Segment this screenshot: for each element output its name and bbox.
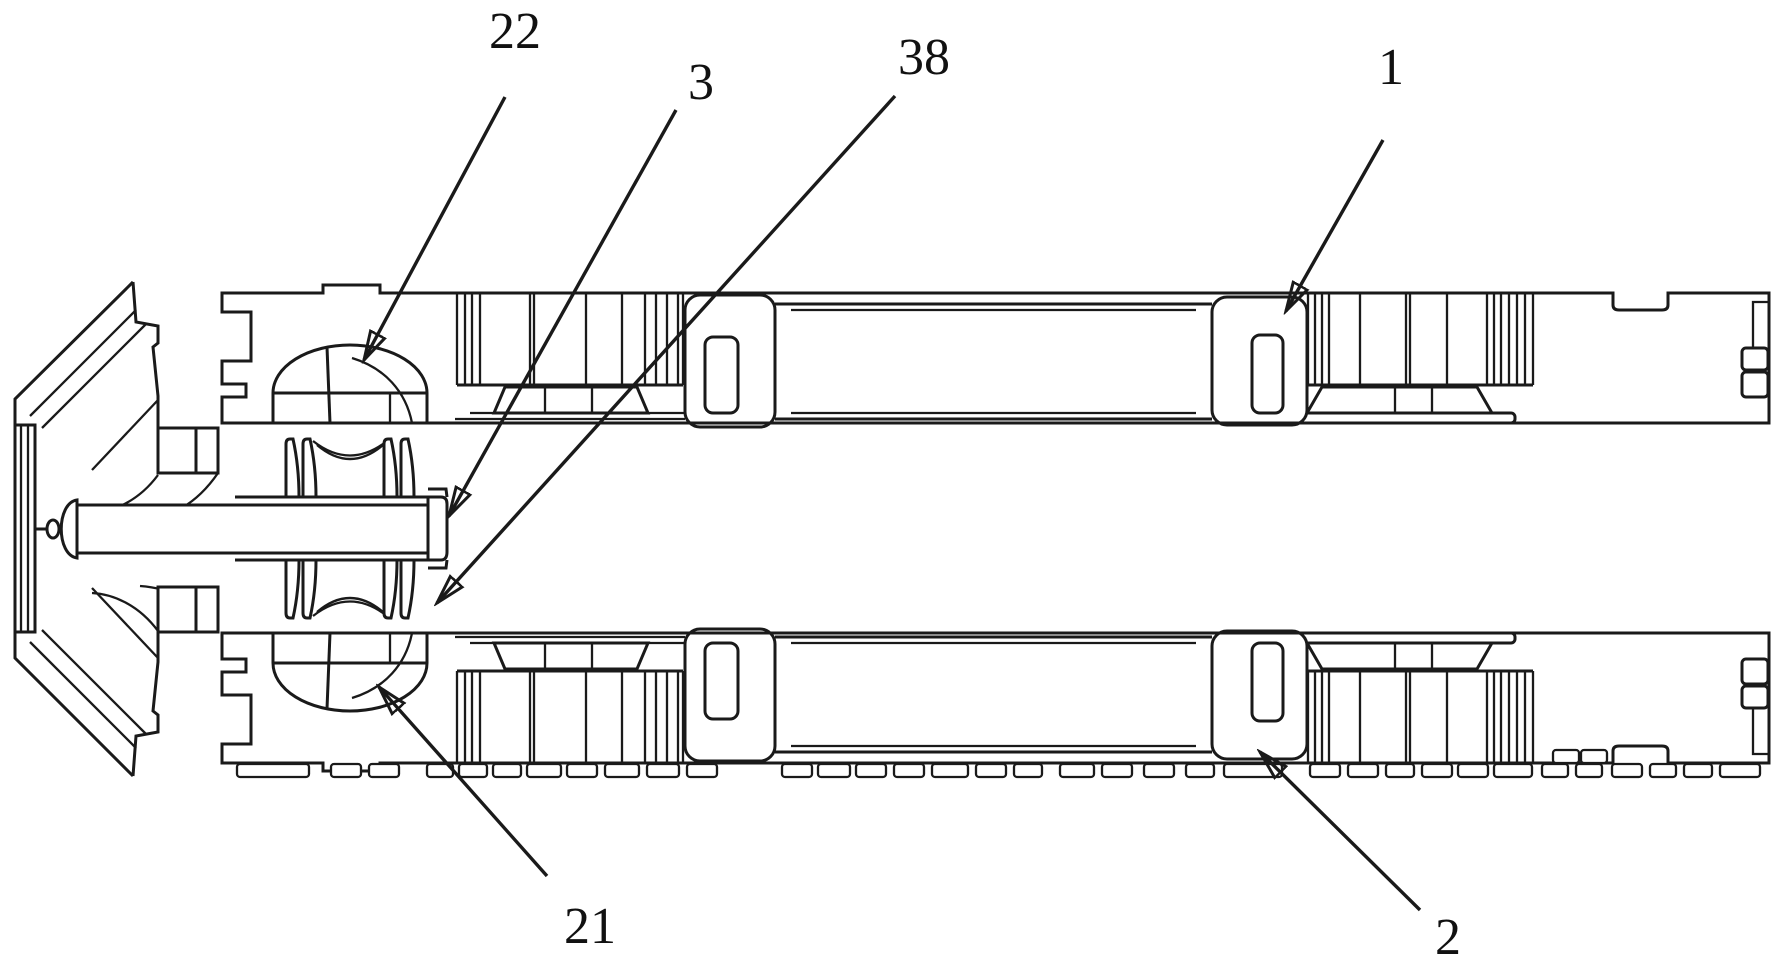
- lower-rail: [222, 629, 1769, 771]
- patent-figure: 223381212: [0, 0, 1785, 972]
- rail-foot: [687, 764, 717, 777]
- axle-tip: [47, 520, 59, 538]
- rail-foot: [567, 764, 597, 777]
- rail-foot: [976, 764, 1006, 777]
- rail-foot: [1650, 764, 1676, 777]
- roller-groove: [313, 602, 387, 617]
- reference-labels: 223381212: [364, 3, 1461, 966]
- rail-foot: [459, 764, 487, 777]
- roller-groove: [313, 441, 387, 456]
- ref-label-38: 38: [898, 29, 950, 86]
- rail-foot: [1684, 764, 1712, 777]
- rail-foot: [1060, 764, 1094, 777]
- rail-foot: [1186, 764, 1214, 777]
- roller-groove: [317, 445, 383, 459]
- roller-flange-blade: [303, 560, 316, 618]
- ref-label-2: 2: [1435, 909, 1461, 966]
- rail-foot: [1612, 764, 1642, 777]
- roller-flange-blade: [303, 439, 316, 497]
- cone-wall: [30, 310, 136, 416]
- rail-foot: [1310, 764, 1340, 777]
- roller-flange-blade: [384, 560, 397, 618]
- leader-line-21: [379, 687, 547, 876]
- rail-foot: [493, 764, 521, 777]
- rail-foot: [818, 764, 850, 777]
- roller-flange-blade: [401, 439, 414, 497]
- bracket-stub: [158, 587, 218, 632]
- rail-foot: [856, 764, 886, 777]
- ref-label-1: 1: [1378, 39, 1404, 96]
- bracket-stub: [158, 428, 218, 473]
- rail-foot: [369, 764, 399, 777]
- rail-foot: [1576, 764, 1602, 777]
- rail-foot: [1386, 764, 1414, 777]
- ref-label-3: 3: [688, 54, 714, 111]
- leader-line-22: [364, 97, 505, 360]
- cone-wall: [30, 642, 136, 748]
- roller-flange-blade: [286, 439, 299, 497]
- upper-rail: [222, 285, 1769, 427]
- cone-wall: [92, 400, 158, 470]
- roller-flange-blade: [286, 560, 299, 618]
- rail-foot: [932, 764, 968, 777]
- leader-line-38: [437, 96, 895, 603]
- cone-wall: [92, 588, 158, 658]
- cone-wall: [42, 630, 146, 734]
- rail-foot: [1422, 764, 1452, 777]
- rail-foot: [1144, 764, 1174, 777]
- rail-foot: [527, 764, 561, 777]
- ref-label-21: 21: [564, 898, 616, 955]
- rail-foot: [237, 764, 309, 777]
- rail-foot: [894, 764, 924, 777]
- rail-foot: [1542, 764, 1568, 777]
- bracket-plate: [15, 425, 35, 632]
- corner-block: [1553, 750, 1579, 763]
- corner-block: [1581, 750, 1607, 763]
- ref-label-22: 22: [489, 3, 541, 60]
- rail-foot: [1014, 764, 1042, 777]
- roller-groove: [317, 598, 383, 612]
- axle-right-cap: [428, 497, 447, 560]
- rail-foot: [1494, 764, 1532, 777]
- rail-foot: [1348, 764, 1378, 777]
- leader-line-3: [449, 110, 676, 516]
- rail-foot: [1102, 764, 1132, 777]
- rail-foot: [647, 764, 679, 777]
- cone-wall: [42, 324, 146, 428]
- rail-foot: [782, 764, 812, 777]
- rail-foot: [605, 764, 639, 777]
- rail-foot: [331, 764, 361, 777]
- leader-line-1: [1286, 140, 1383, 311]
- axle-shaft: [77, 505, 428, 553]
- roller-flange-blade: [384, 439, 397, 497]
- rail-foot: [1720, 764, 1760, 777]
- rail-foot: [1458, 764, 1488, 777]
- axle-left-cap: [61, 500, 77, 558]
- roller-flange-blade: [401, 560, 414, 618]
